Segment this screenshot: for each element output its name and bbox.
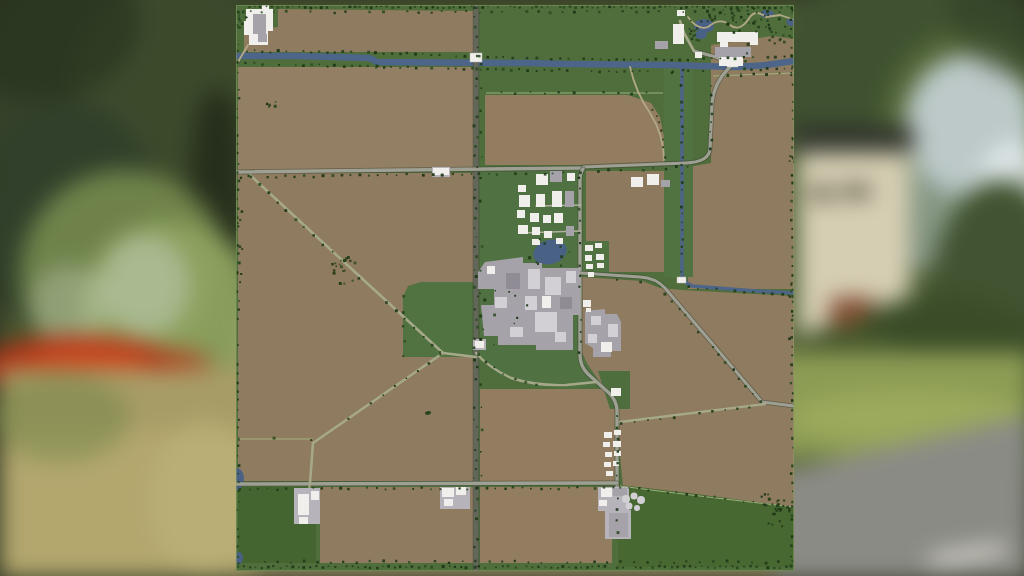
- tree: [299, 6, 301, 8]
- tree: [344, 11, 346, 13]
- tree: [790, 18, 793, 21]
- tree: [568, 566, 570, 568]
- tree: [772, 503, 774, 505]
- tree: [768, 24, 770, 26]
- tree: [739, 10, 741, 12]
- tree: [418, 567, 420, 569]
- tree: [785, 566, 787, 568]
- tree: [366, 487, 368, 489]
- tree: [321, 487, 324, 490]
- tree: [680, 206, 683, 209]
- tree: [790, 564, 793, 567]
- building: [597, 263, 604, 268]
- building: [519, 195, 530, 207]
- tree: [346, 565, 348, 567]
- tree: [757, 6, 760, 9]
- tree: [290, 562, 292, 564]
- tree: [698, 39, 700, 41]
- tree: [753, 73, 756, 76]
- tree: [330, 562, 332, 564]
- tree: [382, 566, 384, 568]
- tree: [439, 488, 441, 490]
- building: [565, 191, 574, 207]
- tree: [724, 361, 727, 364]
- tree: [515, 567, 517, 569]
- tree: [568, 58, 570, 60]
- tree: [466, 489, 468, 491]
- tree: [417, 11, 420, 14]
- building: [536, 194, 545, 207]
- tree: [474, 269, 476, 271]
- tree: [485, 567, 487, 569]
- tree: [623, 59, 625, 61]
- tree: [710, 85, 712, 87]
- tree: [791, 327, 793, 329]
- bridge: [470, 53, 482, 62]
- building: [695, 52, 702, 58]
- tree: [784, 56, 786, 58]
- tree: [702, 70, 704, 72]
- tree: [303, 560, 306, 563]
- tree: [738, 29, 740, 31]
- tree: [568, 487, 570, 489]
- building: [586, 308, 591, 312]
- tree: [303, 226, 305, 228]
- tree: [620, 422, 623, 425]
- tree: [616, 566, 619, 569]
- road: [236, 483, 617, 484]
- tree: [617, 438, 620, 441]
- tree: [465, 10, 467, 12]
- tree: [261, 63, 263, 65]
- tree: [485, 361, 488, 364]
- tree: [531, 7, 533, 9]
- tree: [682, 229, 684, 231]
- building: [601, 488, 612, 497]
- screenshot-root: [0, 0, 1024, 576]
- tree: [617, 498, 619, 500]
- tree: [473, 286, 476, 289]
- tree: [736, 567, 739, 570]
- tree: [454, 566, 456, 568]
- tree: [406, 10, 408, 12]
- tree: [395, 560, 397, 562]
- tree: [359, 174, 362, 177]
- tree: [791, 409, 793, 411]
- building: [588, 334, 597, 343]
- tree: [246, 51, 248, 53]
- tree: [476, 460, 478, 462]
- tree: [309, 566, 311, 568]
- tree: [495, 488, 497, 490]
- tree: [695, 495, 697, 497]
- tree: [652, 167, 654, 169]
- tree: [764, 15, 766, 17]
- tree: [736, 6, 738, 8]
- tree: [738, 378, 740, 380]
- tree: [480, 131, 482, 133]
- tree: [405, 566, 407, 568]
- building: [661, 180, 670, 187]
- tree: [471, 67, 474, 70]
- tree: [604, 565, 607, 568]
- tree: [550, 488, 552, 490]
- tree: [480, 69, 482, 71]
- tree: [789, 160, 791, 162]
- tree: [430, 54, 432, 56]
- tree: [516, 317, 518, 319]
- tree: [647, 419, 649, 421]
- tree: [479, 338, 482, 341]
- tree: [628, 487, 630, 489]
- tree: [237, 427, 239, 429]
- tree: [496, 174, 498, 176]
- tree: [562, 565, 565, 568]
- tree: [526, 304, 528, 306]
- tree: [746, 10, 748, 12]
- tree: [544, 173, 547, 176]
- tree: [477, 353, 480, 356]
- tree: [399, 565, 402, 568]
- tree: [775, 32, 777, 34]
- tree: [238, 473, 239, 474]
- tree: [616, 415, 618, 417]
- tree: [479, 12, 481, 14]
- tree: [647, 6, 649, 8]
- tree: [731, 8, 733, 10]
- tree: [522, 487, 524, 489]
- tree: [725, 409, 726, 410]
- tree: [460, 566, 462, 568]
- tree: [237, 528, 239, 530]
- tree: [239, 488, 242, 491]
- tree: [682, 213, 684, 215]
- tree: [698, 412, 700, 414]
- tree: [303, 50, 305, 52]
- tree: [479, 270, 481, 272]
- tree: [474, 449, 476, 451]
- tree: [473, 7, 476, 10]
- tree: [788, 510, 790, 512]
- tree: [731, 16, 734, 19]
- tree: [725, 6, 727, 8]
- tree: [334, 12, 336, 14]
- tree: [704, 496, 706, 498]
- tree: [576, 486, 578, 488]
- tree: [442, 565, 445, 568]
- tree: [474, 308, 476, 310]
- building: [535, 312, 557, 332]
- tree: [334, 262, 336, 264]
- tree: [495, 290, 496, 291]
- tree: [261, 567, 263, 569]
- tree: [725, 566, 727, 568]
- tree: [501, 561, 503, 563]
- building: [585, 255, 592, 261]
- tree: [719, 565, 721, 567]
- tree: [743, 68, 746, 71]
- tree: [238, 180, 241, 183]
- tree: [488, 173, 490, 175]
- tree: [639, 281, 642, 284]
- tree: [514, 92, 517, 95]
- tree: [531, 566, 533, 568]
- building: [525, 296, 537, 310]
- building: [655, 41, 668, 49]
- tree: [276, 489, 278, 491]
- tree: [580, 341, 582, 343]
- tree: [765, 73, 768, 76]
- tree: [257, 488, 259, 490]
- building: [311, 491, 319, 500]
- tree: [765, 562, 768, 565]
- tree: [237, 318, 239, 320]
- tree: [238, 18, 240, 20]
- tree: [237, 344, 239, 346]
- building: [715, 47, 751, 57]
- tree: [441, 10, 443, 12]
- tree: [238, 439, 240, 441]
- tree: [474, 16, 476, 18]
- tree: [310, 11, 312, 13]
- tree: [313, 487, 315, 489]
- tree: [709, 148, 712, 151]
- tree: [302, 566, 305, 569]
- tree: [708, 6, 710, 8]
- tree: [619, 560, 622, 563]
- tree: [455, 11, 457, 13]
- tree: [608, 71, 610, 73]
- tree: [769, 27, 771, 29]
- tree: [237, 222, 239, 224]
- tree: [336, 266, 338, 268]
- tree: [281, 6, 282, 7]
- tree: [682, 238, 684, 240]
- tree: [697, 331, 699, 333]
- tree: [414, 53, 417, 56]
- tree: [740, 75, 742, 77]
- tree: [757, 26, 759, 28]
- tree: [476, 366, 478, 368]
- tree: [374, 51, 377, 54]
- tree: [326, 52, 328, 54]
- tree: [386, 173, 388, 175]
- tree: [439, 351, 441, 353]
- tree: [476, 7, 478, 9]
- tree: [452, 173, 454, 175]
- tree: [481, 156, 483, 158]
- tree: [724, 498, 726, 500]
- tree: [771, 31, 773, 33]
- tree: [347, 488, 349, 490]
- tree: [743, 19, 745, 21]
- tree: [422, 53, 423, 54]
- tree: [767, 494, 769, 496]
- tree: [459, 487, 461, 489]
- tree: [275, 101, 277, 103]
- building: [517, 210, 525, 218]
- tree: [358, 277, 361, 280]
- tree: [740, 16, 742, 18]
- tree: [763, 292, 765, 294]
- tree: [369, 560, 371, 562]
- tree: [675, 165, 678, 168]
- barn-window: [842, 186, 870, 197]
- tree: [476, 116, 479, 119]
- building: [614, 430, 621, 435]
- tree: [304, 6, 307, 9]
- building: [631, 177, 643, 187]
- tree: [479, 383, 481, 385]
- tree: [478, 55, 481, 58]
- tree: [598, 11, 601, 14]
- tree: [473, 124, 476, 127]
- tree: [713, 8, 716, 11]
- tree: [617, 92, 619, 94]
- tree: [593, 561, 596, 564]
- tree: [249, 567, 251, 569]
- tree: [475, 487, 478, 490]
- tree: [406, 52, 408, 54]
- tree: [541, 6, 543, 8]
- tree: [477, 136, 479, 138]
- tree: [526, 69, 529, 72]
- tree: [453, 6, 455, 8]
- tree: [685, 493, 688, 496]
- tree: [483, 329, 485, 331]
- tree: [352, 565, 354, 567]
- tree: [732, 20, 734, 22]
- tree: [476, 319, 478, 321]
- tree: [376, 567, 379, 570]
- tree: [476, 498, 479, 501]
- tree: [392, 6, 395, 8]
- tree: [563, 6, 566, 9]
- tree: [711, 19, 714, 22]
- building: [495, 297, 507, 308]
- tree: [682, 69, 684, 71]
- tree: [528, 562, 530, 564]
- tree: [387, 565, 390, 568]
- tree: [578, 177, 580, 179]
- tree: [607, 168, 610, 171]
- tree: [579, 242, 581, 244]
- tree: [560, 255, 563, 258]
- tree: [566, 69, 568, 71]
- tree: [563, 172, 565, 174]
- tree: [651, 566, 654, 569]
- tree: [620, 169, 622, 171]
- tree: [349, 260, 351, 262]
- tree: [411, 565, 414, 568]
- building: [567, 173, 575, 181]
- tree: [430, 488, 432, 490]
- building: [444, 499, 453, 506]
- tree: [340, 265, 343, 268]
- tree: [448, 562, 450, 564]
- tree: [781, 293, 784, 296]
- field: [403, 282, 476, 357]
- tree: [574, 6, 577, 9]
- tree: [512, 486, 514, 489]
- tree: [664, 156, 666, 158]
- tree: [525, 10, 528, 13]
- tree: [689, 33, 691, 35]
- tree: [791, 174, 794, 177]
- tree: [320, 6, 323, 9]
- building: [554, 213, 563, 223]
- tree: [495, 68, 497, 70]
- building: [258, 34, 267, 42]
- tree: [791, 319, 792, 320]
- tree: [789, 35, 791, 37]
- tree: [273, 12, 275, 14]
- tree: [597, 170, 600, 173]
- tree: [710, 103, 713, 106]
- tree: [734, 15, 736, 17]
- tree: [772, 513, 774, 515]
- tree: [432, 173, 435, 176]
- tree: [791, 228, 793, 230]
- tree: [382, 559, 385, 562]
- tree: [417, 370, 419, 372]
- tree: [701, 566, 702, 567]
- tree: [765, 26, 767, 28]
- tree: [280, 567, 282, 569]
- tree: [270, 52, 272, 54]
- tree: [651, 109, 653, 111]
- tree: [623, 70, 625, 72]
- tree: [293, 176, 295, 178]
- tree: [647, 70, 649, 72]
- tree: [743, 56, 745, 58]
- building: [555, 332, 566, 342]
- tree: [409, 6, 412, 9]
- tree: [496, 56, 498, 58]
- tree: [272, 565, 274, 567]
- tree: [660, 418, 662, 420]
- tree: [295, 218, 298, 221]
- tree: [398, 6, 400, 8]
- tree: [449, 566, 451, 568]
- building: [719, 57, 743, 66]
- tree: [748, 22, 750, 24]
- tree: [579, 220, 581, 222]
- building: [583, 300, 591, 307]
- tree: [238, 481, 240, 483]
- tree: [691, 38, 693, 40]
- building: [528, 269, 540, 289]
- tree: [476, 166, 478, 168]
- tree: [756, 12, 758, 14]
- tree: [239, 20, 241, 22]
- tree: [784, 26, 786, 28]
- field: [244, 9, 474, 52]
- tree: [714, 567, 716, 569]
- tree: [712, 346, 714, 348]
- tree: [237, 207, 240, 210]
- tree: [710, 131, 711, 132]
- tree: [391, 52, 393, 54]
- tree: [254, 62, 256, 64]
- tree: [244, 62, 246, 64]
- tree: [711, 113, 714, 116]
- tree: [331, 174, 334, 177]
- tree: [687, 70, 689, 72]
- tree: [518, 68, 520, 70]
- tree: [752, 291, 754, 293]
- tree: [566, 562, 568, 564]
